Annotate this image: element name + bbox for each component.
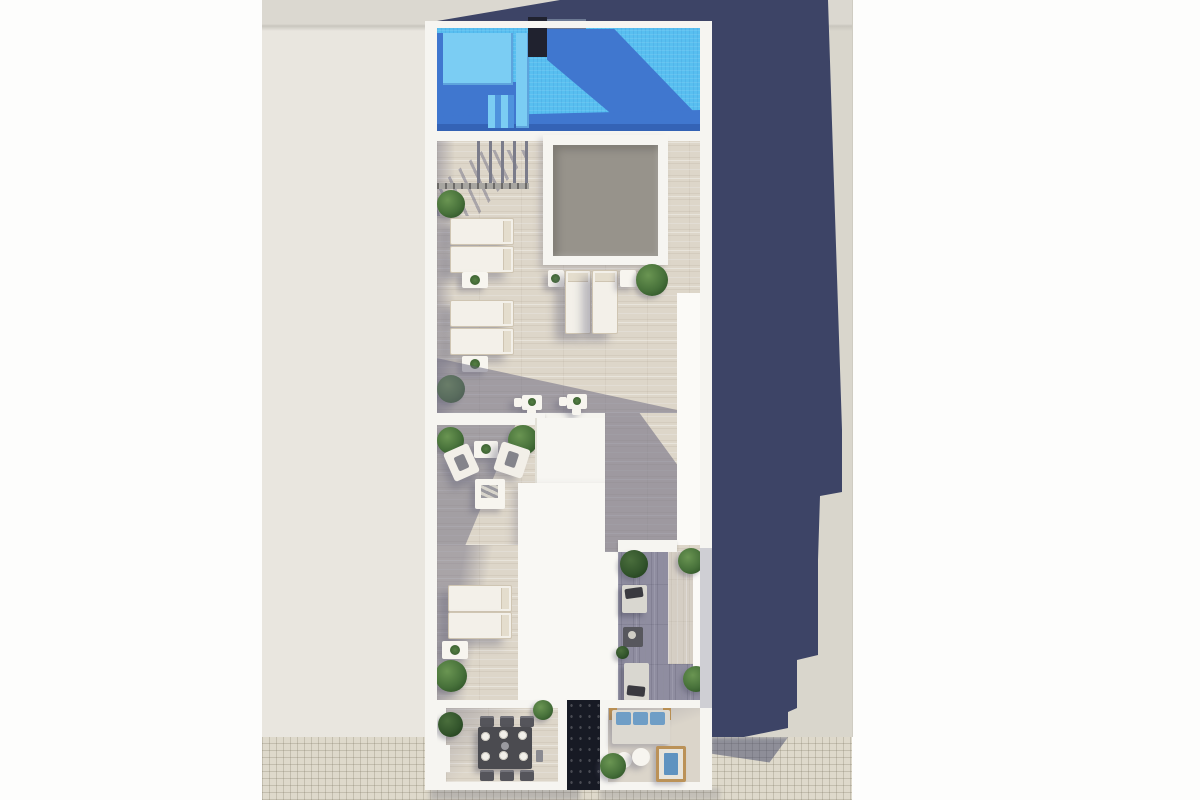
skylight-glass	[553, 145, 658, 256]
potted-plant	[450, 645, 460, 655]
plate	[499, 751, 508, 760]
roof-volume-small	[535, 418, 607, 483]
plate	[519, 752, 528, 761]
potted-plant	[481, 444, 491, 454]
potted-plant	[528, 398, 536, 406]
right-inner-wall	[677, 293, 700, 545]
plate	[499, 730, 508, 739]
bistro-chair	[559, 397, 567, 406]
coffee-table-items	[481, 485, 498, 498]
sun-lounger	[448, 585, 512, 612]
plant	[620, 550, 648, 578]
railing-bar	[437, 183, 529, 189]
plant	[437, 190, 465, 218]
plant	[533, 700, 553, 720]
potted-plant	[551, 274, 560, 283]
wood-lounger-cushion	[664, 753, 678, 775]
sun-lounger	[565, 270, 591, 334]
table-items	[628, 631, 636, 639]
outer-wall-left	[425, 21, 437, 790]
bistro-chair	[572, 408, 581, 415]
terrace-divider-wall	[618, 540, 677, 552]
potted-plant	[573, 397, 581, 405]
dining-chair	[480, 770, 494, 781]
sofa-cushion-blue	[650, 712, 665, 725]
plant	[438, 712, 463, 737]
stairwell-void	[567, 700, 600, 790]
plate	[518, 731, 527, 740]
railing-posts	[477, 141, 529, 187]
plant	[616, 646, 629, 659]
round-table	[632, 748, 650, 766]
rooftop-render	[0, 0, 1200, 800]
sun-lounger	[450, 328, 514, 355]
roof-volume-large	[518, 483, 618, 705]
sofa-cushion-blue	[633, 712, 648, 725]
outer-wall-right-shade	[700, 548, 712, 708]
plate	[481, 732, 490, 741]
sun-lounger	[450, 218, 514, 245]
daybed-pillow	[627, 685, 646, 697]
sun-lounger	[592, 270, 618, 334]
dining-chair	[500, 716, 514, 727]
sun-lounger	[450, 246, 514, 273]
plant	[636, 264, 668, 296]
side-table	[620, 270, 636, 287]
side-object	[536, 750, 543, 762]
pool-tanning-shelf	[443, 33, 513, 85]
outer-wall-top	[425, 21, 712, 28]
plant	[435, 660, 467, 692]
sofa-cushion-blue	[616, 712, 631, 725]
pool-deep-line	[437, 124, 700, 131]
potted-plant	[470, 275, 480, 285]
sun-lounger	[448, 612, 512, 639]
table-centerpiece	[501, 742, 509, 750]
divider-wall	[437, 413, 545, 425]
dining-chair	[480, 716, 494, 727]
pool-small-steps	[488, 95, 514, 128]
dining-chair	[520, 716, 534, 727]
dining-chair	[520, 770, 534, 781]
plate	[481, 752, 490, 761]
bistro-chair	[514, 398, 522, 407]
dining-chair	[500, 770, 514, 781]
plant	[600, 753, 626, 779]
sun-lounger	[450, 300, 514, 327]
